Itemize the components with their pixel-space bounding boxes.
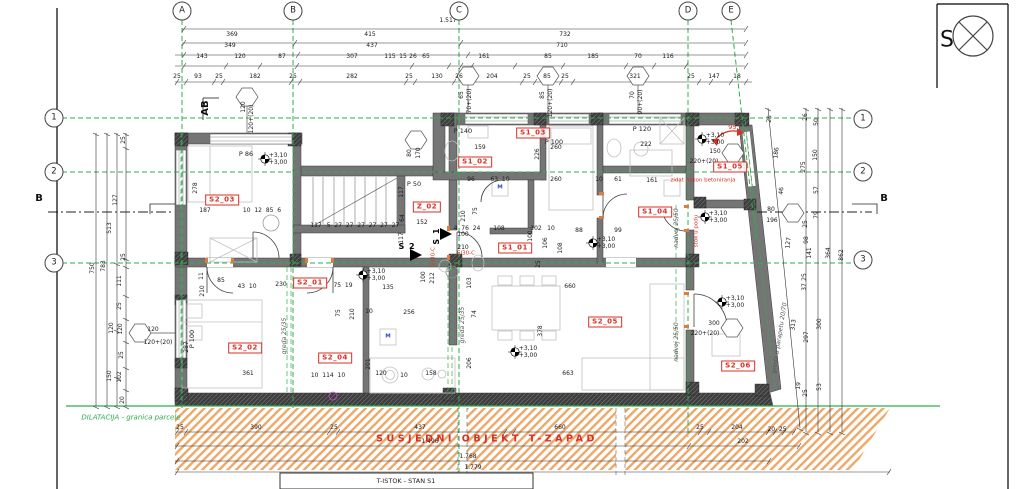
dimension-label: 10 xyxy=(547,226,555,232)
dimension-label: 25 xyxy=(803,220,809,228)
dimension-label: 25 xyxy=(696,425,704,431)
dimension-label: 127 xyxy=(785,237,792,249)
dimension-label: 210 xyxy=(350,308,356,319)
grid-bubble: 3 xyxy=(854,251,873,270)
dimension-label: 100 xyxy=(421,271,427,282)
dimension-label: 85 xyxy=(544,54,552,60)
dimension-label: 230 xyxy=(275,282,286,288)
entrance-label: S 1 xyxy=(433,227,441,244)
dimension-label: 108 xyxy=(558,242,564,253)
dimension-label: 93 xyxy=(194,74,202,80)
beam-label: greda 25/35 xyxy=(460,307,466,344)
dimension-label: 117 xyxy=(399,186,405,197)
dimension-label: 364 xyxy=(826,247,832,258)
dimension-label: 161 xyxy=(646,178,657,184)
dimension-label: 120 xyxy=(241,101,247,112)
dimension-label: 85 xyxy=(217,278,225,284)
dimension-label: 98 xyxy=(804,236,810,244)
dimension-label: 65 xyxy=(422,54,430,60)
dimension-label: 120+(20) xyxy=(548,89,554,118)
section-mark-label: AB xyxy=(201,100,211,115)
dimension-label: +3,00 xyxy=(709,218,727,224)
room-label: S2_02 xyxy=(228,343,262,354)
room-label: S1_05 xyxy=(713,162,747,173)
dimension-label: 50 xyxy=(814,118,820,126)
dimension-label: +3,00 xyxy=(367,276,385,282)
dimension-label: 25 xyxy=(767,115,774,123)
dimension-label: 25 xyxy=(330,425,338,431)
dimension-label: 85 xyxy=(540,91,546,99)
dimension-label: 196 xyxy=(766,218,777,224)
dimension-label: 313 xyxy=(790,319,797,331)
dimension-label: 26 xyxy=(803,113,809,121)
dimension-label: 161 xyxy=(478,54,489,60)
dimension-label: 750 xyxy=(90,262,96,273)
dimension-label: 361 xyxy=(242,371,253,377)
dimension-label: 170 xyxy=(416,147,422,158)
dimension-label: 106 xyxy=(543,237,549,248)
dimension-label: 152 xyxy=(416,220,427,226)
entrance-label: S 2 xyxy=(398,243,415,251)
dimension-label: 212 xyxy=(430,272,436,283)
section-mark-label: B xyxy=(880,194,888,204)
dimension-label: 70 xyxy=(634,54,642,60)
dimension-label: 25 xyxy=(523,74,531,80)
grid-bubble: B xyxy=(284,2,303,21)
grid-bubble: 1 xyxy=(45,109,64,128)
dimension-label: 46 xyxy=(779,187,786,195)
dimension-label: 90+(20) xyxy=(638,90,644,115)
dimension-label: 369 xyxy=(226,32,237,38)
dimension-label: 111 xyxy=(117,275,123,286)
dimension-label: +3,00 xyxy=(726,303,744,309)
room-label: S2_06 xyxy=(721,361,755,372)
dimension-label: 321 xyxy=(629,74,640,80)
dimension-label: 732 xyxy=(559,32,570,38)
title-box-text: T-ISTOK - STAN S1 xyxy=(377,477,436,485)
dimension-label: 99 xyxy=(614,228,622,234)
dimension-label: 25 xyxy=(561,74,569,80)
dimension-label: 25 xyxy=(117,302,123,310)
dimension-label: 120 xyxy=(234,54,245,60)
dimension-label: 25 xyxy=(687,74,695,80)
area-tag-label: P 86 xyxy=(239,151,253,158)
dimension-label: 300 xyxy=(817,318,823,329)
room-label: S2_04 xyxy=(318,353,352,364)
dimension-label: 307 xyxy=(346,54,357,60)
dimension-label: 25 xyxy=(289,74,297,80)
dimension-label: 185 xyxy=(587,54,598,60)
dimension-label: 256 xyxy=(403,310,414,316)
dimension-label: 25 xyxy=(121,136,127,144)
room-label: S2_01 xyxy=(293,278,327,289)
red-note-label: zidat nakon betoniranja xyxy=(670,178,735,184)
dimension-label: 202 xyxy=(737,439,748,445)
dimension-label: 120+(20) xyxy=(249,105,255,134)
dimension-label: 660 xyxy=(564,284,575,290)
dimension-label: 43 10 xyxy=(237,284,256,290)
dimension-label: 783 xyxy=(101,260,107,271)
dimension-label: 75 xyxy=(336,309,342,317)
dimension-label: 25 xyxy=(536,260,542,268)
dimension-label: 147 xyxy=(708,74,719,80)
dimension-label: 53 xyxy=(817,383,823,391)
grid-bubble: C xyxy=(450,2,469,21)
grid-bubble: D xyxy=(679,2,698,21)
dimension-label: 862 xyxy=(839,249,845,260)
dimension-label: 120+(20) xyxy=(144,340,173,346)
room-label: S1_04 xyxy=(638,207,672,218)
dimension-label: 204 xyxy=(486,74,497,80)
room-label: Z_02 xyxy=(413,202,441,213)
dimension-label: 11 xyxy=(199,272,205,280)
dimension-label: 102 xyxy=(117,371,123,382)
grid-bubble: 2 xyxy=(854,163,873,182)
dimension-label: 25 xyxy=(176,425,184,431)
dimension-label: 159 xyxy=(474,145,485,151)
dimension-label: 25 xyxy=(121,253,127,261)
dimension-label: 260 xyxy=(550,177,561,183)
beam-label: nadvoj 25/50 xyxy=(674,322,680,361)
section-mark-label: B xyxy=(35,194,43,204)
dimension-label: 206 xyxy=(467,357,473,368)
dimension-label: 660 xyxy=(554,425,565,431)
dimension-label: 108 xyxy=(493,226,504,232)
dimension-label: 20 25 xyxy=(767,427,786,433)
dimension-label: 103 xyxy=(467,277,473,288)
dimension-label: +3,00 xyxy=(269,160,287,166)
dimension-label: 65 xyxy=(459,91,465,99)
grid-bubble: A xyxy=(173,2,192,21)
dimension-label: 80 xyxy=(767,207,775,213)
grid-bubble: 1 xyxy=(854,110,873,129)
dimension-label: 663 xyxy=(562,371,573,377)
grid-bubble: 3 xyxy=(45,254,64,273)
dimension-label: 25 xyxy=(215,74,223,80)
dimension-label: 79 xyxy=(814,211,820,219)
dimension-label: 349 xyxy=(224,43,235,49)
dimension-label: 63 10 xyxy=(490,177,509,183)
dimension-label: 120 xyxy=(147,327,158,333)
dimension-label: 1.768 xyxy=(459,454,476,460)
dimension-label: 204 xyxy=(731,425,742,431)
beam-label: greda 25/35 xyxy=(282,318,288,355)
dimension-label: 5 27 27 27 27 27 27 xyxy=(327,223,400,229)
dimension-label: 282 xyxy=(346,74,357,80)
dimension-label: 10 114 10 xyxy=(311,373,345,379)
grid-bubble: 2 xyxy=(45,163,64,182)
dimension-label: 260 xyxy=(550,145,561,151)
dimension-label: 120 xyxy=(118,323,124,334)
beam-label: nadvoj 25/50 xyxy=(674,208,680,247)
red-note-label: EI30-C xyxy=(431,247,437,265)
dimension-label: 275 xyxy=(801,161,807,172)
dimension-label: 70 xyxy=(630,91,636,99)
dimension-label: 186 xyxy=(773,147,780,159)
dimension-label: 25 xyxy=(119,351,125,359)
dimension-label: 87 xyxy=(278,54,286,60)
dimension-label: 80 xyxy=(407,149,413,157)
room-label: S1_01 xyxy=(498,243,532,254)
dimension-label: 18 xyxy=(733,74,741,80)
dimension-label: 10 xyxy=(365,309,373,315)
dimension-label: 10 xyxy=(400,373,408,379)
dimension-label: 415 xyxy=(364,32,375,38)
dimension-label: 116 xyxy=(662,54,673,60)
dimension-label: 437 xyxy=(414,425,425,431)
dimension-label: 710 xyxy=(556,43,567,49)
appliance-label: M xyxy=(497,185,502,191)
dimension-label: 182 xyxy=(249,74,260,80)
dimension-label: +3,00 xyxy=(519,353,537,359)
dimension-label: 437 xyxy=(366,43,377,49)
room-label: S2_03 xyxy=(205,195,239,206)
dimension-label: 88 xyxy=(575,228,583,234)
dimension-label: 297 xyxy=(804,331,810,342)
dimension-label: 222 xyxy=(640,142,651,148)
dimension-label: 143 xyxy=(196,54,207,60)
dimension-label: 120 xyxy=(109,322,115,333)
red-note-label: štok u podu xyxy=(694,215,700,247)
dimension-label: 25 xyxy=(803,389,809,397)
dimension-label: 100 xyxy=(528,230,534,241)
dimension-label: 278 xyxy=(193,182,199,193)
north-compass-icon xyxy=(953,16,993,56)
dimension-label: 85 xyxy=(543,74,551,80)
dimension-label: 57 xyxy=(814,186,820,194)
appliance-label: M xyxy=(385,334,390,340)
area-tag-label: P 100 xyxy=(189,330,196,348)
dimension-label: 70+(20) xyxy=(467,89,473,114)
dimension-label: 210 xyxy=(200,285,206,296)
dimension-label: 201 xyxy=(366,358,372,369)
dimension-label: 127 xyxy=(113,194,119,205)
dimension-label: 10 12 85 6 xyxy=(243,208,281,214)
room-label: S1_03 xyxy=(516,128,550,139)
area-tag-label: P 50 xyxy=(407,181,421,188)
dimension-label: 75 xyxy=(473,207,479,215)
dimension-label: 64 xyxy=(400,214,406,222)
dimension-label: 300 xyxy=(708,321,719,327)
dimension-label: 150 xyxy=(813,149,819,160)
dimension-label: 120 xyxy=(375,371,386,377)
dimension-label: 74 xyxy=(472,310,478,318)
dimension-label: 96 xyxy=(467,177,475,183)
dimension-label: 158 xyxy=(425,371,436,377)
compass-label: S xyxy=(940,28,954,53)
dimension-label: 150 xyxy=(709,149,720,155)
dimension-label: 135 xyxy=(382,285,393,291)
dimension-label: 141 xyxy=(807,247,813,258)
dimension-label: 37 xyxy=(802,283,808,291)
area-tag-label: P 120 xyxy=(633,126,651,133)
dimension-label: 117 xyxy=(310,223,321,229)
angle-label: 95° xyxy=(728,124,740,131)
red-note-label: EI30-C xyxy=(457,251,475,257)
dimension-label: 26 xyxy=(455,74,463,80)
dimension-label: 226 xyxy=(535,148,541,159)
dimension-label: 15 xyxy=(399,54,407,60)
staircase xyxy=(313,177,397,226)
dimension-label: 1.779 xyxy=(464,465,481,471)
dimension-label: 130 xyxy=(431,74,442,80)
dimension-label: 115 xyxy=(384,54,395,60)
dimension-label: 150 xyxy=(107,370,113,381)
dilatation-label: DILATACIJA - granica parcele xyxy=(81,415,180,422)
room-label: S2_05 xyxy=(588,317,622,328)
dimension-label: 26 xyxy=(409,54,417,60)
area-tag-label: P 140 xyxy=(454,128,472,135)
dimension-label: 10 xyxy=(595,177,603,183)
neighbour-object-banner: SUSJEDNI OBJEKT T-ZAPAD xyxy=(376,434,598,445)
dimension-label: 75 19 xyxy=(333,283,352,289)
dimension-label: 378 xyxy=(538,325,544,336)
floor-plan-page: 1.51736941573234943771014312087307115152… xyxy=(0,0,1024,489)
dimension-label: 20 xyxy=(120,396,126,404)
dimension-label: 390 xyxy=(250,425,261,431)
dimension-label: 100 xyxy=(457,232,468,238)
room-label: S1_02 xyxy=(458,157,492,168)
dimension-label: 210 xyxy=(461,210,467,221)
dimension-label: +3,00 xyxy=(597,244,615,250)
dimension-label: +3,00 xyxy=(706,140,724,146)
dimension-label: 25 xyxy=(802,273,808,281)
dimension-label: 25 xyxy=(173,74,181,80)
dimension-label: 220+(20) xyxy=(691,331,720,337)
dimension-label: 513 xyxy=(107,222,113,233)
dimension-label: 61 xyxy=(614,177,622,183)
dimension-label: 187 xyxy=(199,208,210,214)
dimension-label: 25 xyxy=(405,74,413,80)
grid-bubble: E xyxy=(722,2,741,21)
area-tag-label: P 100 xyxy=(545,139,563,146)
